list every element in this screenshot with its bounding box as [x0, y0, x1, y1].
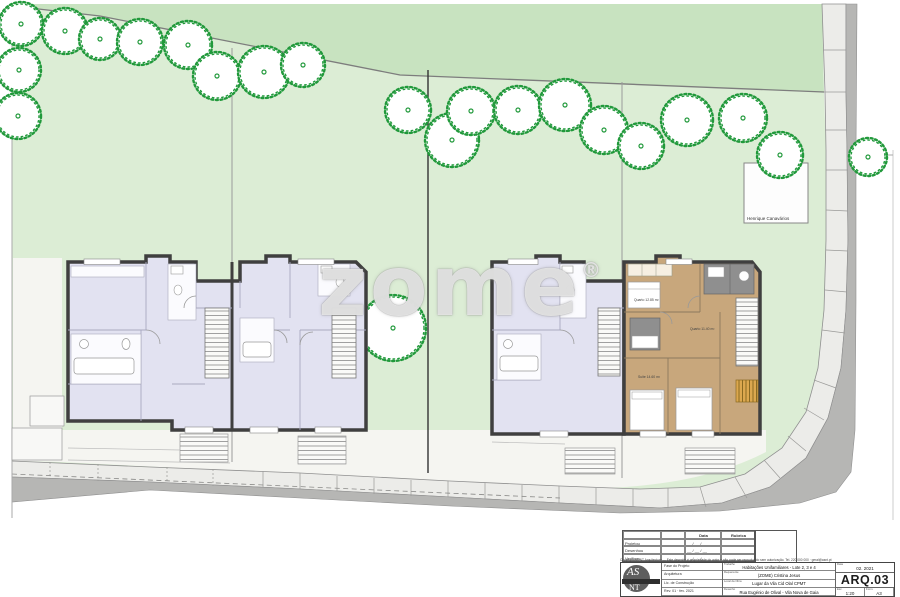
format-value: A3: [876, 591, 882, 596]
title-block: Copyright AS·NT Arquitectura — Este dese…: [620, 558, 895, 597]
svg-text:Quarto 11.40 m²: Quarto 11.40 m²: [690, 327, 715, 331]
rev-cell: [661, 531, 685, 539]
title-block-body: AS NT Fase do Projeto Arquitetura Lic. d…: [620, 562, 895, 597]
svg-text:Quarto 12.85 m²: Quarto 12.85 m²: [634, 298, 660, 302]
architect-logo: AS NT: [621, 563, 662, 596]
rev-col-date: Data: [685, 531, 721, 539]
info-row: Lic. de Construção: [662, 580, 722, 588]
patio: [12, 428, 62, 460]
scale-value: 1:20: [846, 591, 855, 596]
rev-row-label: Projetou: [623, 539, 661, 547]
field-row: Local da Obra Lugar da Vila Cid Olal CPM…: [723, 580, 835, 588]
deck-steps: [736, 380, 758, 402]
drawing-scale: Esc. 1:20: [836, 588, 865, 596]
site-plan-sheet: Henrique Canavários: [0, 0, 900, 597]
tree-icon: [385, 87, 431, 133]
rev-cell: [661, 539, 685, 547]
stairs: [598, 308, 620, 376]
field-value: Habitações Unifamiliares - Lote 2, 3 e 4: [723, 566, 835, 570]
project-fields-column: Trabalho Habitações Unifamiliares - Lote…: [723, 563, 836, 596]
info-row: Arquitetura: [662, 571, 722, 579]
scale-format-row: Esc. 1:20 Form. A3: [836, 587, 894, 596]
tree-icon: [281, 43, 325, 87]
rev-row-date: __ / __ / __: [685, 539, 721, 547]
tree-icon: [117, 19, 163, 65]
exterior-stairs: [180, 434, 228, 462]
watermark: zome®: [318, 244, 601, 328]
date-value: 02. 2021: [856, 566, 874, 571]
tree-icon: [494, 86, 542, 134]
drawing-id-column: Data 02. 2021 ARQ.03 Esc. 1:20 Form. A3: [836, 563, 894, 596]
rev-col-signature: Rubrica: [721, 531, 755, 539]
tree-icon: [193, 52, 241, 100]
drawing-number: ARQ.03: [836, 573, 894, 587]
tree-icon: [447, 87, 495, 135]
rev-row-label: Desenhou: [623, 546, 661, 554]
logo-circle: AS NT: [623, 565, 650, 592]
sheet-format: Form. A3: [865, 588, 894, 596]
logo-letters-bottom: NT: [629, 583, 640, 592]
stairs: [736, 298, 758, 366]
tree-icon: [0, 2, 43, 46]
rev-cell: [661, 546, 685, 554]
field-value: Rua Eugénio de Olival - Vila Nova de Gai…: [723, 591, 835, 595]
rev-cell: [623, 531, 661, 539]
rev-cell: [721, 539, 755, 547]
exterior-stairs: [298, 436, 346, 464]
project-info-column: Fase do Projeto Arquitetura Lic. de Cons…: [662, 563, 723, 596]
neighbor-label: Henrique Canavários: [747, 216, 790, 221]
drawing-date: Data 02. 2021: [836, 563, 894, 573]
rev-cell: [721, 546, 755, 554]
field-value: (ZOME) Cristina Jesus: [723, 574, 835, 578]
field-value: Lugar da Vila Cid Olal CPMT: [723, 582, 835, 586]
stairs: [205, 308, 229, 378]
tree-icon: [79, 18, 121, 60]
svg-text:Suite 14.60 m²: Suite 14.60 m²: [638, 375, 661, 379]
field-row: Requerente (ZOME) Cristina Jesus: [723, 571, 835, 579]
exterior-stairs: [685, 448, 735, 474]
tree-icon: [661, 94, 713, 146]
registered-mark-icon: ®: [581, 258, 601, 282]
tree-icon: [719, 94, 767, 142]
info-row: Fase do Projeto: [662, 563, 722, 571]
field-row: Desenho Rua Eugénio de Olival - Vila Nov…: [723, 588, 835, 596]
patio: [30, 396, 64, 426]
info-row: Rev. 01 · fev. 2021: [662, 588, 722, 596]
tree-icon: [0, 48, 41, 92]
field-row: Trabalho Habitações Unifamiliares - Lote…: [723, 563, 835, 571]
tree-icon: [757, 132, 803, 178]
tree-icon: [618, 123, 664, 169]
rev-row-date: __ / __ / __: [685, 546, 721, 554]
tree-icon: [849, 138, 887, 176]
logo-bar: [622, 579, 660, 584]
tree-icon: [0, 93, 41, 139]
watermark-text: zome: [318, 237, 581, 335]
exterior-stairs: [565, 448, 615, 474]
logo-letters-top: AS: [627, 566, 639, 578]
